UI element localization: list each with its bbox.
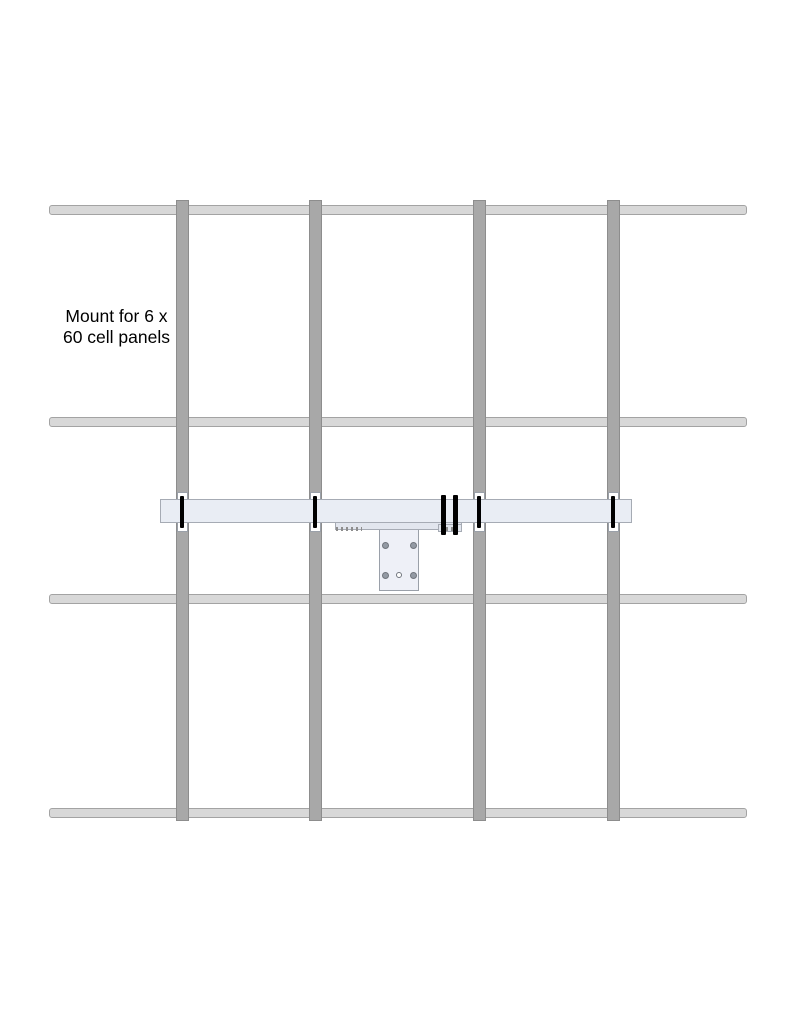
middle-clamp-1 [441,495,446,535]
horizontal-rail-3 [49,594,747,604]
rail-clamp-4 [611,496,615,528]
mount-beam [160,499,632,523]
bolt-hole-bottom-left [382,572,389,579]
rail-clamp-2 [313,496,317,528]
diagram-canvas: Mount for 6 x 60 cell panels [0,0,792,1024]
horizontal-rail-4 [49,808,747,818]
middle-clamp-2 [453,495,458,535]
panel-mount-label: Mount for 6 x 60 cell panels [30,306,203,347]
bracket-plate [379,527,419,591]
flange-teeth-left [336,527,362,531]
rail-clamp-1 [180,496,184,528]
horizontal-rail-2 [49,417,747,427]
bolt-hole-bottom-right [410,572,417,579]
panel-mount-label-line2: 60 cell panels [30,327,203,348]
pivot-hole [396,572,402,578]
panel-mount-label-line1: Mount for 6 x [30,306,203,327]
rail-clamp-3 [477,496,481,528]
horizontal-rail-1 [49,205,747,215]
bolt-hole-top-right [410,542,417,549]
bolt-hole-top-left [382,542,389,549]
